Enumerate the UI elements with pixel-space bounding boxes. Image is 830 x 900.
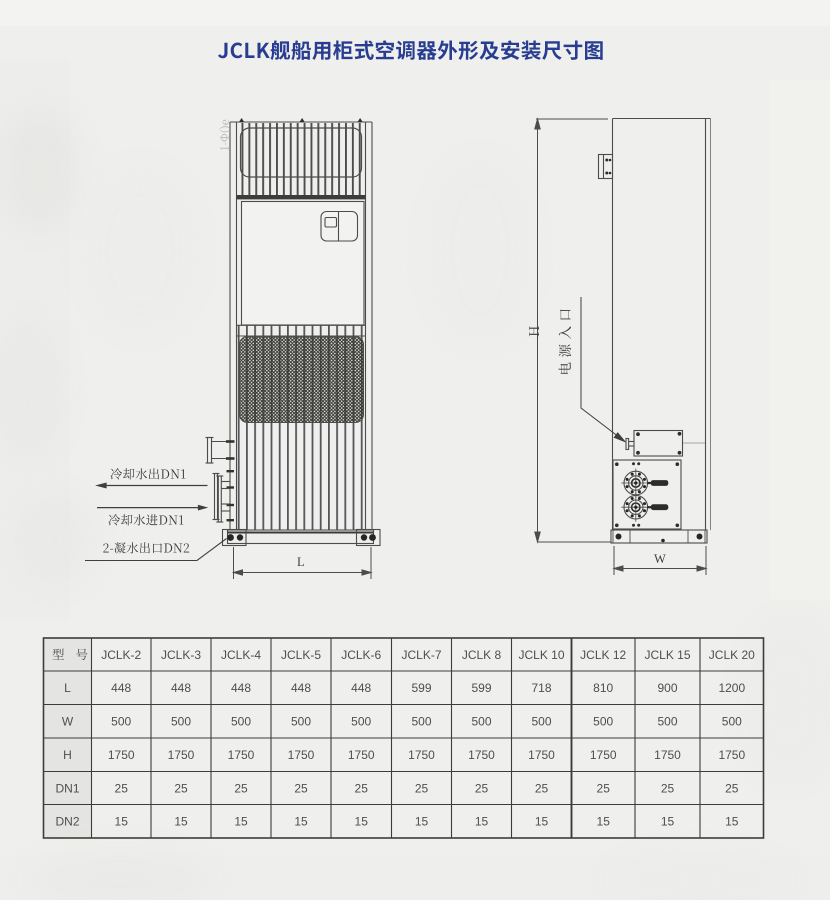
svg-text:810: 810 xyxy=(593,681,613,695)
svg-text:1750: 1750 xyxy=(348,748,375,762)
svg-text:1750: 1750 xyxy=(718,748,745,762)
svg-text:718: 718 xyxy=(531,681,551,695)
svg-text:15: 15 xyxy=(234,815,248,829)
svg-text:25: 25 xyxy=(174,781,188,795)
svg-text:JCLK 8: JCLK 8 xyxy=(462,648,502,662)
svg-text:JCLK 15: JCLK 15 xyxy=(644,648,690,662)
svg-text:JCLK-5: JCLK-5 xyxy=(281,648,321,662)
svg-text:15: 15 xyxy=(535,815,549,829)
svg-text:L: L xyxy=(297,555,305,569)
svg-text:500: 500 xyxy=(231,715,251,729)
svg-text:500: 500 xyxy=(171,715,191,729)
svg-text:1750: 1750 xyxy=(654,748,681,762)
svg-text:1750: 1750 xyxy=(168,748,195,762)
svg-text:500: 500 xyxy=(471,715,491,729)
svg-text:1750: 1750 xyxy=(108,748,135,762)
svg-text:1750: 1750 xyxy=(590,748,617,762)
svg-text:599: 599 xyxy=(471,681,491,695)
svg-text:500: 500 xyxy=(657,715,677,729)
svg-text:L: L xyxy=(64,681,71,695)
svg-text:25: 25 xyxy=(475,781,489,795)
svg-text:500: 500 xyxy=(531,715,551,729)
svg-text:JCLK 12: JCLK 12 xyxy=(580,648,626,662)
svg-text:1750: 1750 xyxy=(288,748,315,762)
svg-text:448: 448 xyxy=(171,681,191,695)
svg-text:500: 500 xyxy=(291,715,311,729)
svg-text:448: 448 xyxy=(111,681,131,695)
svg-text:15: 15 xyxy=(725,815,739,829)
svg-text:500: 500 xyxy=(593,715,613,729)
svg-text:25: 25 xyxy=(234,781,248,795)
svg-text:448: 448 xyxy=(291,681,311,695)
svg-text:1750: 1750 xyxy=(528,748,555,762)
svg-text:500: 500 xyxy=(351,715,371,729)
svg-text:25: 25 xyxy=(725,781,739,795)
svg-text:JCLK-7: JCLK-7 xyxy=(401,648,441,662)
svg-text:JCLK-6: JCLK-6 xyxy=(341,648,381,662)
svg-text:25: 25 xyxy=(535,781,549,795)
svg-text:25: 25 xyxy=(597,781,611,795)
svg-text:25: 25 xyxy=(415,781,429,795)
svg-text:25: 25 xyxy=(294,781,308,795)
svg-text:15: 15 xyxy=(294,815,308,829)
svg-text:15: 15 xyxy=(115,815,129,829)
svg-text:500: 500 xyxy=(411,715,431,729)
svg-text:15: 15 xyxy=(597,815,611,829)
svg-text:500: 500 xyxy=(111,715,131,729)
svg-text:15: 15 xyxy=(475,815,489,829)
svg-text:JCLK 10: JCLK 10 xyxy=(518,648,564,662)
svg-text:DN2: DN2 xyxy=(55,815,79,829)
svg-text:DN1: DN1 xyxy=(55,781,79,795)
svg-text:1750: 1750 xyxy=(228,748,255,762)
svg-text:H: H xyxy=(63,748,72,762)
svg-text:900: 900 xyxy=(657,681,677,695)
svg-text:JCLK 20: JCLK 20 xyxy=(709,648,755,662)
svg-text:500: 500 xyxy=(722,715,742,729)
svg-text:599: 599 xyxy=(411,681,431,695)
svg-text:15: 15 xyxy=(415,815,429,829)
svg-text:25: 25 xyxy=(355,781,369,795)
svg-text:1750: 1750 xyxy=(468,748,495,762)
svg-text:25: 25 xyxy=(115,781,129,795)
svg-text:25: 25 xyxy=(661,781,675,795)
svg-text:15: 15 xyxy=(355,815,369,829)
svg-text:1750: 1750 xyxy=(408,748,435,762)
svg-text:W: W xyxy=(62,715,74,729)
svg-text:JCLK-3: JCLK-3 xyxy=(161,648,201,662)
svg-text:W: W xyxy=(654,552,666,566)
svg-text:15: 15 xyxy=(174,815,188,829)
svg-text:JCLK-4: JCLK-4 xyxy=(221,648,261,662)
svg-text:448: 448 xyxy=(351,681,371,695)
svg-text:JCLK-2: JCLK-2 xyxy=(101,648,141,662)
svg-text:448: 448 xyxy=(231,681,251,695)
svg-text:1200: 1200 xyxy=(718,681,745,695)
svg-text:15: 15 xyxy=(661,815,675,829)
